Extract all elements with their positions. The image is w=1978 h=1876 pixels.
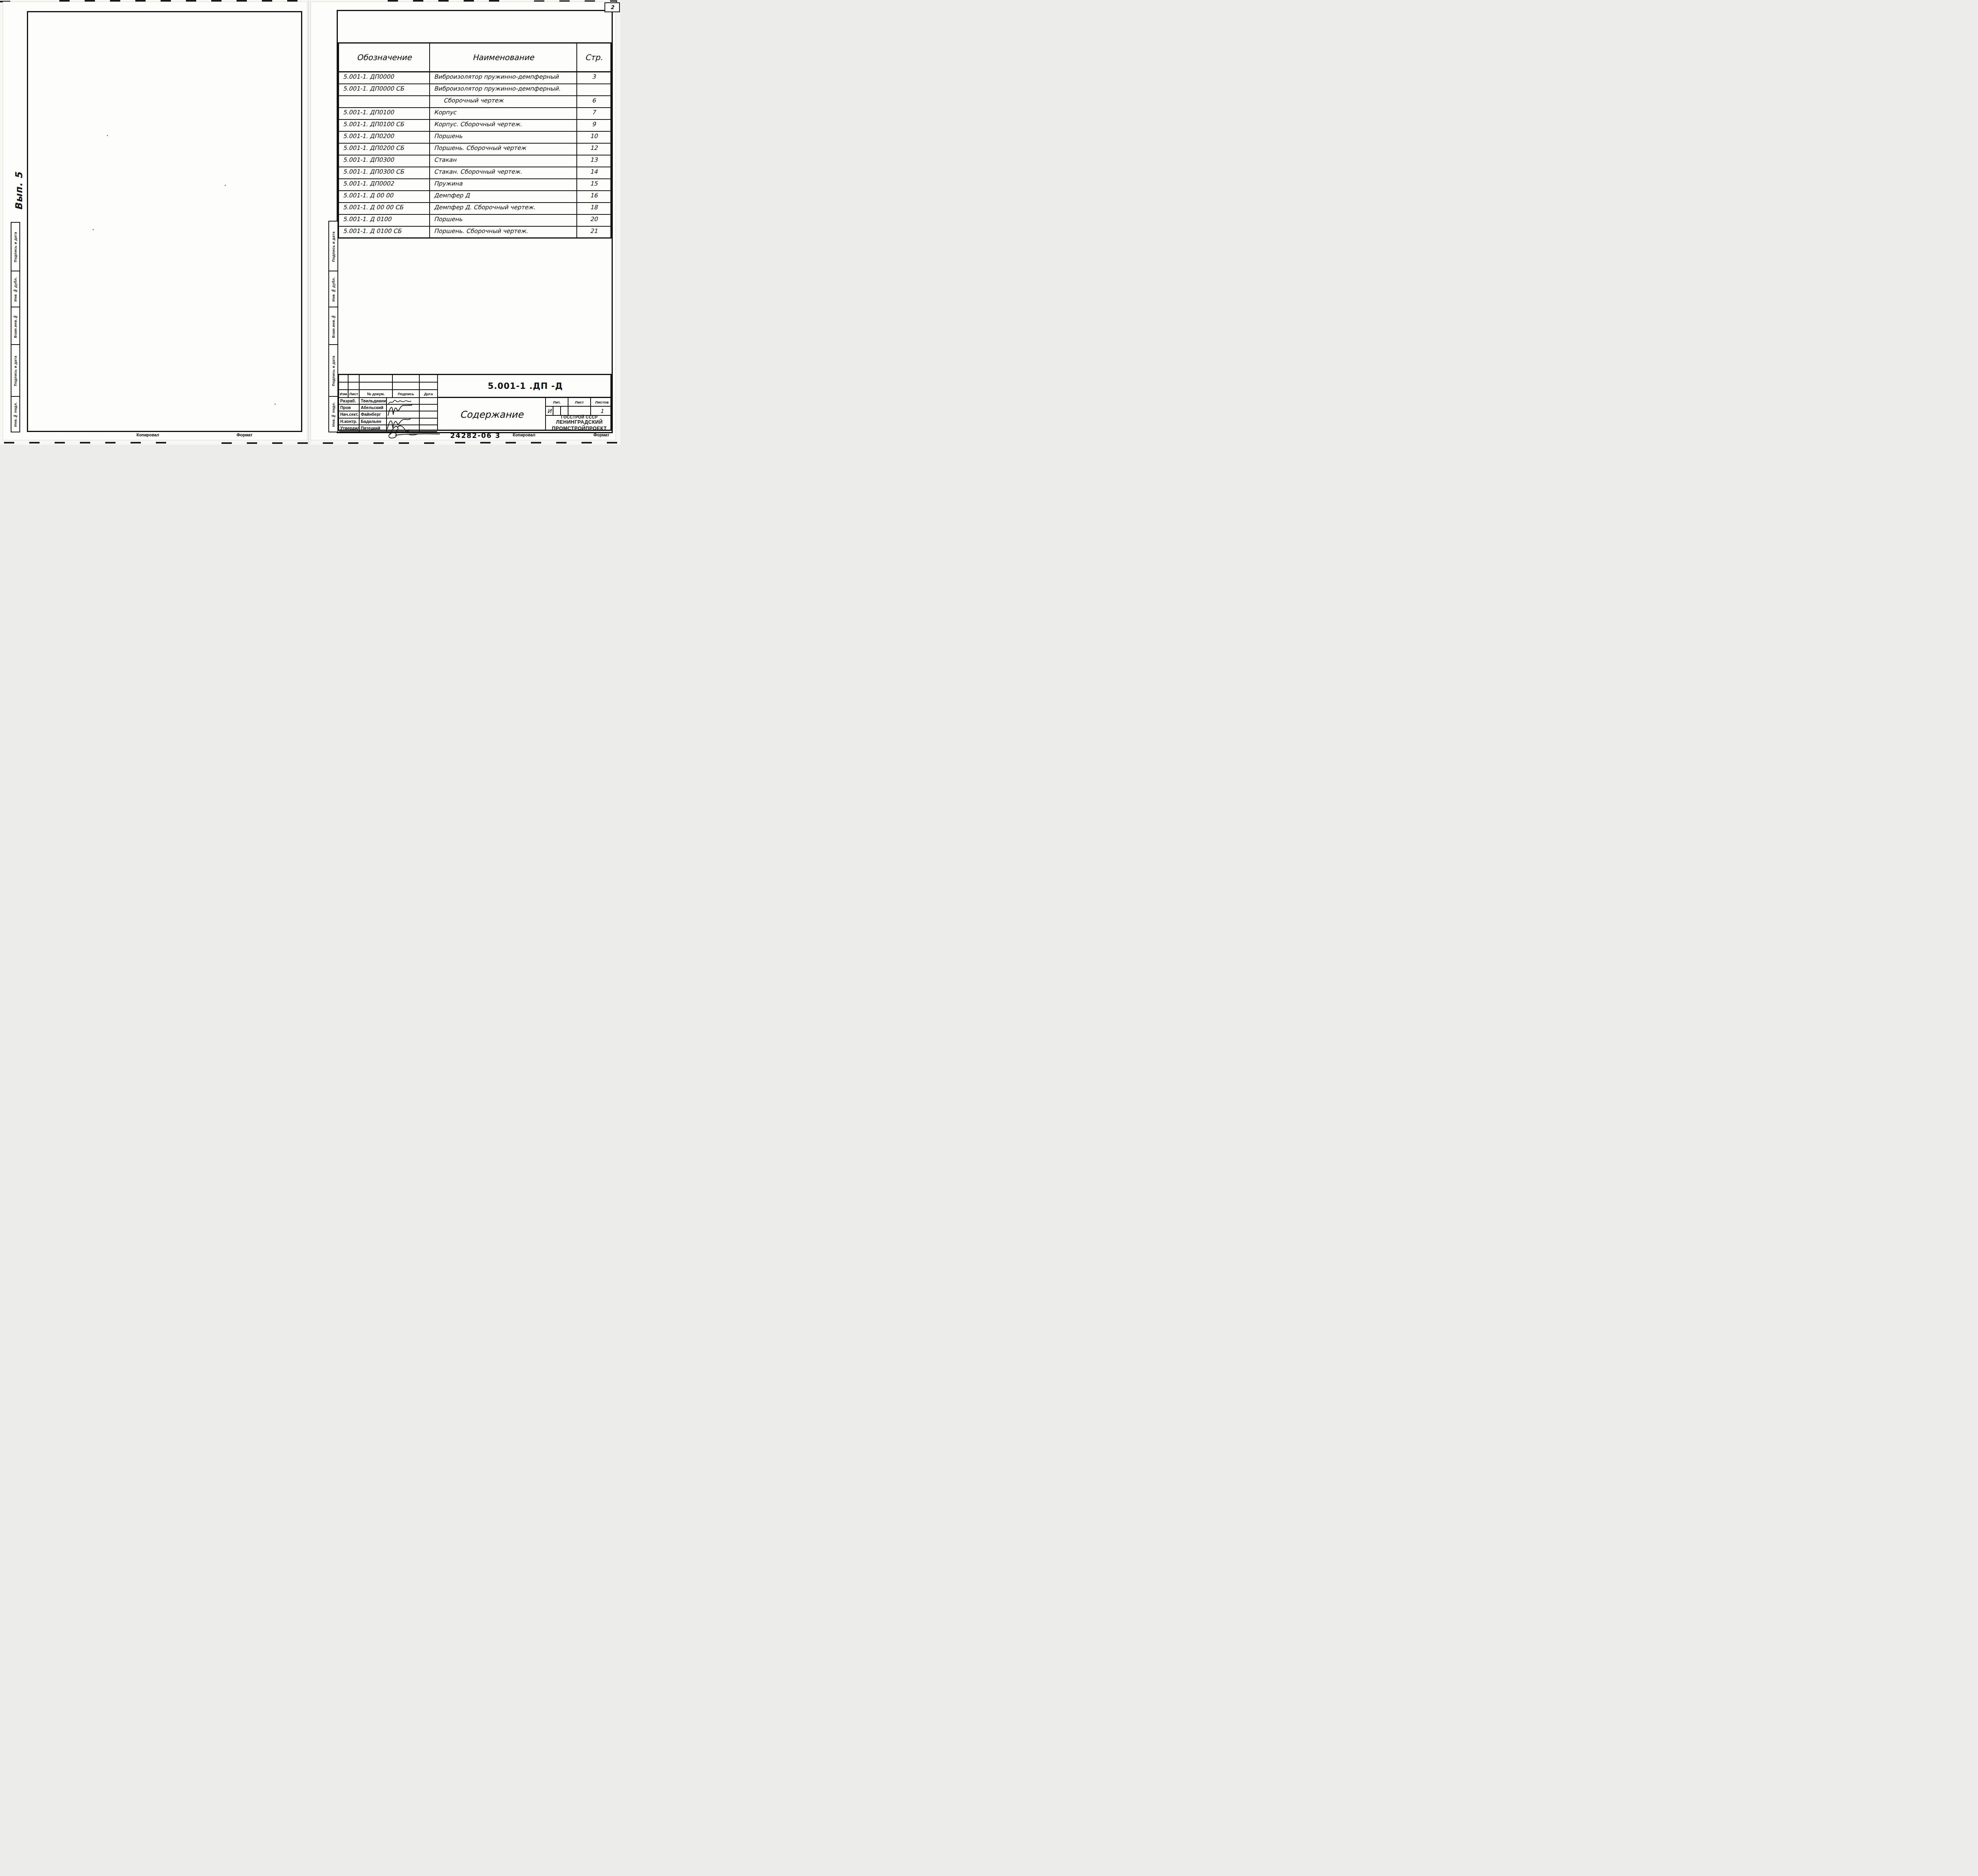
contents-table: Обозначение Наименование Стр. 5.001-1. Д… bbox=[338, 42, 612, 239]
name-cell: Виброизолятор пружинно-демпферный bbox=[430, 72, 577, 83]
margin-box: Взам.инв.№ bbox=[328, 307, 338, 346]
left-page-drawing-frame bbox=[27, 11, 302, 432]
header-page: Стр. bbox=[577, 44, 610, 71]
sign-row: ПровАбельский bbox=[339, 405, 437, 411]
sheets-value-cell: 1 bbox=[590, 407, 613, 416]
margin-label: Взам.инв.№ bbox=[13, 315, 17, 338]
designation-cell: 5.001-1. ДП0300 СБ bbox=[339, 167, 430, 178]
page-cell: 21 bbox=[577, 227, 610, 239]
organization-cell: ГОССТРОЙ СССР ЛЕНИНГРАДСКИЙ ПРОМСТРОЙПРО… bbox=[545, 416, 613, 431]
page-cell: 9 bbox=[577, 120, 610, 131]
contents-rows: 5.001-1. ДП0000Виброизолятор пружинно-де… bbox=[339, 72, 610, 239]
sign-name: Абельский bbox=[360, 405, 387, 411]
page-cell: 12 bbox=[577, 144, 610, 155]
designation-cell bbox=[339, 96, 430, 107]
contents-row: 5.001-1. Д 0100Поршень20 bbox=[339, 215, 610, 227]
contents-row: 5.001-1. Д 00 00 СБДемпфер Д. Сборочный … bbox=[339, 203, 610, 215]
margin-label: Инв № дубл. bbox=[13, 277, 17, 301]
scan-artifact bbox=[308, 0, 309, 445]
scan-artifact bbox=[59, 0, 305, 2]
margin-box: Инв.№ подл. bbox=[11, 396, 20, 432]
scan-artifact bbox=[225, 185, 226, 186]
revision-cell bbox=[360, 375, 393, 383]
header-designation: Обозначение bbox=[339, 44, 430, 71]
contents-row: 5.001-1. Д 0100 СБПоршень. Сборочный чер… bbox=[339, 227, 610, 239]
margin-box: Инв № дубл. bbox=[11, 271, 20, 308]
sign-name: Файнберг bbox=[360, 411, 387, 418]
sheet-number: 2 bbox=[610, 4, 614, 10]
page-cell: 6 bbox=[577, 96, 610, 107]
margin-box: Подпись и дата bbox=[11, 344, 20, 398]
header-name: Наименование bbox=[430, 44, 577, 71]
document-code-cell: 5.001-1 .ДП -Д bbox=[437, 375, 613, 398]
scan-artifact bbox=[310, 0, 310, 445]
page-cell: 18 bbox=[577, 203, 610, 214]
revision-header: Лист bbox=[349, 390, 360, 398]
scan-artifact bbox=[222, 442, 435, 444]
name-cell: Демпфер Д bbox=[430, 191, 577, 202]
page-cell: 20 bbox=[577, 215, 610, 226]
contents-row: 5.001-1. ДП0000Виброизолятор пружинно-де… bbox=[339, 72, 610, 84]
contents-row: 5.001-1. Д 00 00Демпфер Д16 bbox=[339, 191, 610, 203]
sheet-header-cell: Лист bbox=[568, 398, 590, 407]
margin-box: Подпись и дата bbox=[328, 344, 338, 398]
scan-artifact bbox=[388, 0, 514, 2]
margin-label: Подпись и дата bbox=[13, 232, 17, 262]
page-cell: 14 bbox=[577, 167, 610, 178]
page-cell: 13 bbox=[577, 155, 610, 167]
page-cell: 7 bbox=[577, 108, 610, 119]
kopiroval-label: Копировал bbox=[513, 432, 535, 437]
organization-line: ГОССТРОЙ СССР bbox=[561, 415, 598, 419]
margin-label: Инв.№ подл. bbox=[332, 402, 335, 427]
designation-cell: 5.001-1. Д 0100 СБ bbox=[339, 227, 430, 239]
margin-label: Инв.№ подл. bbox=[13, 402, 17, 427]
revision-header: Дата bbox=[420, 390, 437, 398]
designation-cell: 5.001-1. ДП0000 bbox=[339, 72, 430, 83]
designation-cell: 5.001-1. ДП0002 bbox=[339, 179, 430, 190]
scanned-document: Подпись и дата Инв № дубл. Взам.инв.№ По… bbox=[0, 0, 620, 445]
document-number: 24282-06 3 bbox=[450, 432, 501, 440]
sign-name: Пятецкий bbox=[360, 425, 387, 432]
signature-table: Разраб.ТвильдианиПровАбельскийНач.сект.Ф… bbox=[339, 398, 437, 432]
sign-role: Нач.сект. bbox=[339, 411, 360, 418]
margin-label: Подпись и дата bbox=[332, 231, 335, 262]
name-cell: Поршень bbox=[430, 215, 577, 226]
sheet-value-cell bbox=[568, 407, 590, 416]
margin-label: Взам.инв.№ bbox=[332, 315, 335, 338]
revision-row-empty bbox=[339, 375, 437, 383]
sign-signature bbox=[387, 398, 420, 405]
revision-cell bbox=[420, 375, 437, 383]
name-cell: Стакан bbox=[430, 155, 577, 167]
name-cell: Виброизолятор пружинно-демпферный. bbox=[430, 84, 577, 95]
margin-box: Взам.инв.№ bbox=[11, 307, 20, 346]
sign-signature bbox=[387, 419, 420, 425]
scan-artifact bbox=[93, 229, 94, 230]
sign-row: Разраб.Твильдиани bbox=[339, 398, 437, 405]
name-cell: Стакан. Сборочный чертеж. bbox=[430, 167, 577, 178]
designation-cell: 5.001-1. ДП0100 СБ bbox=[339, 120, 430, 131]
revision-cell bbox=[393, 383, 420, 390]
contents-row: 5.001-1. ДП0002Пружина15 bbox=[339, 179, 610, 191]
contents-row: 5.001-1. ДП0300Стакан13 bbox=[339, 155, 610, 167]
lit-value-cell-2 bbox=[553, 407, 560, 416]
designation-cell: 5.001-1. ДП0300 bbox=[339, 155, 430, 167]
page-cell: 3 bbox=[577, 72, 610, 83]
contents-row: 5.001-1. ДП0100Корпус7 bbox=[339, 108, 610, 120]
lit-header-cell: Лит. bbox=[545, 398, 568, 407]
name-cell: Корпус bbox=[430, 108, 577, 119]
revision-cell bbox=[349, 375, 360, 383]
document-code: 5.001-1 .ДП -Д bbox=[488, 381, 563, 391]
document-title: Содержание bbox=[460, 409, 523, 420]
sign-signature bbox=[387, 411, 420, 418]
revision-cell bbox=[339, 383, 349, 390]
kopiroval-label: Копировал bbox=[136, 432, 159, 437]
sign-date bbox=[420, 405, 437, 411]
sign-date bbox=[420, 419, 437, 425]
revision-cell bbox=[393, 375, 420, 383]
sheet-number-box: 2 bbox=[604, 2, 620, 12]
scan-artifact bbox=[107, 135, 108, 136]
sign-row: Нач.сект.Файнберг bbox=[339, 411, 437, 418]
designation-cell: 5.001-1. Д 00 00 СБ bbox=[339, 203, 430, 214]
margin-label: Подпись и дата bbox=[13, 356, 17, 386]
designation-cell: 5.001-1. Д 0100 bbox=[339, 215, 430, 226]
contents-row: 5.001-1. ДП0300 СБСтакан. Сборочный черт… bbox=[339, 167, 610, 179]
lit-value-cell: И bbox=[545, 407, 553, 416]
left-page: Подпись и дата Инв № дубл. Взам.инв.№ По… bbox=[3, 2, 307, 440]
sign-signature bbox=[387, 425, 420, 432]
scan-artifact bbox=[455, 442, 617, 443]
sheets-header-cell: Листов bbox=[590, 398, 613, 407]
sign-date bbox=[420, 411, 437, 418]
organization-line: ЛЕНИНГРАДСКИЙ bbox=[556, 419, 603, 426]
revision-cell bbox=[420, 383, 437, 390]
revision-header: Изм bbox=[339, 390, 349, 398]
scan-artifact bbox=[4, 442, 170, 443]
title-block: Изм Лист № докум. Подпись Дата Разраб.Тв… bbox=[338, 374, 612, 431]
contents-row: Сборочный чертеж6 bbox=[339, 96, 610, 108]
contents-header-row: Обозначение Наименование Стр. bbox=[339, 44, 610, 72]
page-cell: 10 bbox=[577, 132, 610, 143]
sign-name: Твильдиани bbox=[360, 398, 387, 405]
page-cell bbox=[577, 84, 610, 95]
revision-header: Подпись bbox=[393, 390, 420, 398]
name-cell: Сборочный чертеж bbox=[430, 96, 577, 107]
revision-header: № докум. bbox=[360, 390, 393, 398]
name-cell: Демпфер Д. Сборочный чертеж. bbox=[430, 203, 577, 214]
sign-signature bbox=[387, 405, 420, 411]
sign-date bbox=[420, 425, 437, 432]
margin-label: Инв № дубл. bbox=[332, 277, 335, 301]
revision-cell bbox=[339, 375, 349, 383]
margin-box: Инв № дубл. bbox=[328, 271, 338, 308]
format-label: Формат bbox=[593, 432, 609, 437]
revision-header-row: Изм Лист № докум. Подпись Дата bbox=[339, 390, 437, 398]
name-cell: Корпус. Сборочный чертеж. bbox=[430, 120, 577, 131]
designation-cell: 5.001-1. ДП0000 СБ bbox=[339, 84, 430, 95]
name-cell: Поршень. Сборочный чертеж. bbox=[430, 227, 577, 239]
page-cell: 16 bbox=[577, 191, 610, 202]
scan-artifact bbox=[275, 404, 276, 405]
designation-cell: 5.001-1. ДП0200 bbox=[339, 132, 430, 143]
handwritten-note: Вып. 5 bbox=[11, 163, 27, 219]
revision-cell bbox=[360, 383, 393, 390]
margin-box: Инв.№ подл. bbox=[328, 396, 338, 432]
name-cell: Поршень bbox=[430, 132, 577, 143]
revision-cell bbox=[349, 383, 360, 390]
name-cell: Пружина bbox=[430, 179, 577, 190]
organization-line: ПРОМСТРОЙПРОЕКТ bbox=[552, 426, 607, 432]
margin-box: Подпись и дата bbox=[11, 222, 20, 272]
lit-value-cell-3 bbox=[560, 407, 568, 416]
document-title-cell: Содержание bbox=[437, 398, 545, 431]
designation-cell: 5.001-1. ДП0100 bbox=[339, 108, 430, 119]
sign-row: УтвердилПятецкий bbox=[339, 425, 437, 432]
revision-row-empty bbox=[339, 383, 437, 390]
name-cell: Поршень. Сборочный чертеж bbox=[430, 144, 577, 155]
sign-role: Утвердил bbox=[339, 425, 360, 432]
contents-row: 5.001-1. ДП0200Поршень10 bbox=[339, 132, 610, 144]
format-label: Формат bbox=[237, 432, 252, 437]
contents-row: 5.001-1. ДП0200 СБПоршень. Сборочный чер… bbox=[339, 144, 610, 155]
designation-cell: 5.001-1. Д 00 00 bbox=[339, 191, 430, 202]
sign-row: Н.контр.Бадальян bbox=[339, 419, 437, 425]
sign-role: Разраб. bbox=[339, 398, 360, 405]
sign-name: Бадальян bbox=[360, 419, 387, 425]
sign-date bbox=[420, 398, 437, 405]
contents-row: 5.001-1. ДП0100 СБКорпус. Сборочный черт… bbox=[339, 120, 610, 132]
margin-label: Подпись и дата bbox=[332, 356, 335, 386]
contents-row: 5.001-1. ДП0000 СБВиброизолятор пружинно… bbox=[339, 84, 610, 96]
sign-role: Н.контр. bbox=[339, 419, 360, 425]
designation-cell: 5.001-1. ДП0200 СБ bbox=[339, 144, 430, 155]
sign-role: Пров bbox=[339, 405, 360, 411]
margin-box: Подпись и дата bbox=[328, 221, 338, 272]
page-cell: 15 bbox=[577, 179, 610, 190]
